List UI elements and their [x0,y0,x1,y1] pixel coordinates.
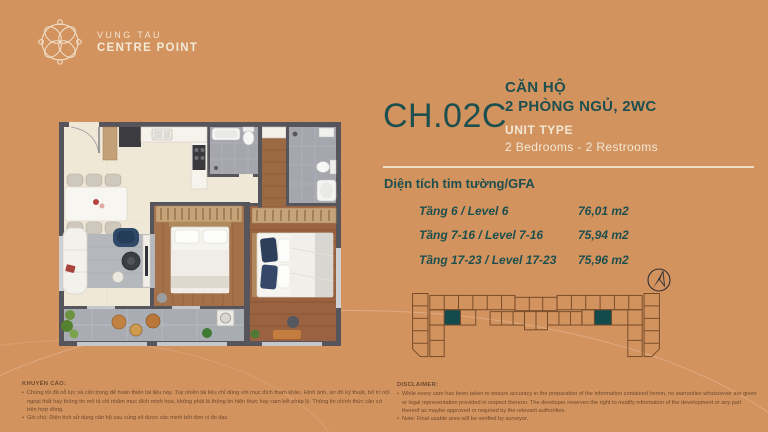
unit-type-label: UNIT TYPE [505,123,573,137]
unit-code: CH.02C [383,97,507,136]
dining-area [65,174,127,234]
gfa-area: 75,96 m2 [578,253,629,267]
gfa-area: 75,94 m2 [578,228,629,242]
advisory-note: KHUYẾN CÁO: • Chúng tôi đã nỗ lực và cẩn… [22,380,390,422]
disclaimer-text: While every care has been taken to ensur… [402,390,758,414]
unit-name-vi: CĂN HỘ [505,79,566,96]
disclaimer-text: Note: Final usable area will be verified… [402,415,528,423]
disclaimer-title: DISCLAIMER: [397,381,758,389]
gfa-row: Tầng 17-23 / Level 17-2375,96 m2 [419,253,629,267]
advisory-text: Ghi chú: Diện tích sử dụng căn hộ sau cù… [27,414,229,422]
gfa-row: Tầng 6 / Level 676,01 m2 [419,204,629,218]
gfa-header: Diện tích tim tường/GFA [384,176,535,191]
unit-type-value: 2 Bedrooms - 2 Restrooms [505,140,658,154]
advisory-text: Chúng tôi đã nỗ lực và cẩn trọng để hoàn… [27,389,390,413]
bullet-marker: • [397,390,399,414]
brochure-page: VUNG TAU CENTRE POINT [0,0,768,432]
lotus-logo-icon [33,13,87,71]
brand-logo: VUNG TAU CENTRE POINT [33,13,198,71]
floor-plan [57,118,347,350]
brand-name-line1: VUNG TAU [97,30,198,40]
gfa-row: Tầng 7-16 / Level 7-1675,94 m2 [419,228,629,242]
key-plan-graphic [402,282,670,370]
gfa-area: 76,01 m2 [578,204,629,218]
disclaimer-bullet: • Note: Final usable area will be verifi… [397,415,758,423]
living-room [63,228,155,294]
bathroom-2 [289,127,336,203]
gfa-level: Tầng 6 / Level 6 [419,204,578,218]
highlighted-unit-left [444,310,460,325]
gfa-level: Tầng 7-16 / Level 7-16 [419,228,578,242]
advisory-title: KHUYẾN CÁO: [22,380,390,388]
highlighted-unit-right [594,310,611,325]
hallway [262,127,286,211]
disclaimer-bullet: • While every care has been taken to ens… [397,390,758,414]
bullet-marker: • [22,389,24,413]
floor-plan-graphic [57,118,347,350]
building-key-plan [402,282,670,370]
bullet-marker: • [397,415,399,423]
bullet-marker: • [22,414,24,422]
divider-line [383,166,754,168]
gfa-level: Tầng 17-23 / Level 17-23 [419,253,578,267]
disclaimer-note: DISCLAIMER: • While every care has been … [397,381,758,423]
advisory-bullet: • Ghi chú: Diện tích sử dụng căn hộ sau … [22,414,390,422]
bathroom-1 [210,127,258,174]
brand-name-line2: CENTRE POINT [97,42,198,54]
advisory-bullet: • Chúng tôi đã nỗ lực và cẩn trọng để ho… [22,389,390,413]
unit-bedrooms-vi: 2 PHÒNG NGỦ, 2WC [505,98,656,115]
